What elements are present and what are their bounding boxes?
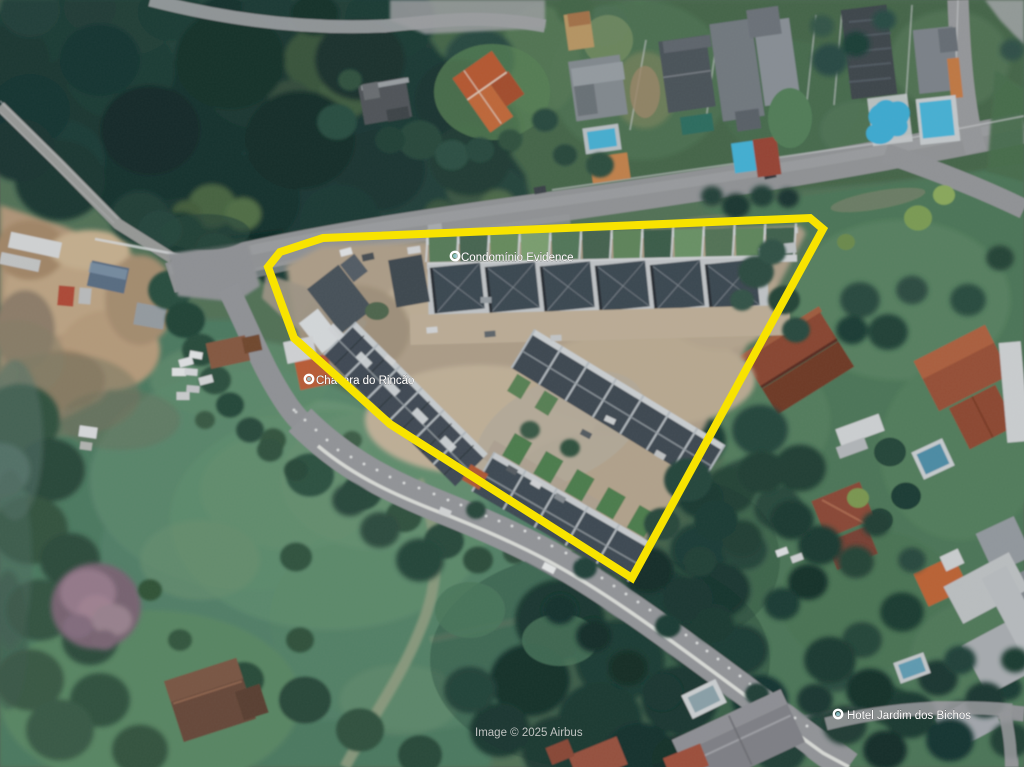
svg-text:Condomínio Evidence: Condomínio Evidence [461,252,574,264]
svg-text:Hotel Jardim dos Bichos: Hotel Jardim dos Bichos [847,710,971,722]
svg-text:Image © 2025 Airbus: Image © 2025 Airbus [475,727,583,739]
svg-text:Chácara do Rincão: Chácara do Rincão [316,375,414,387]
